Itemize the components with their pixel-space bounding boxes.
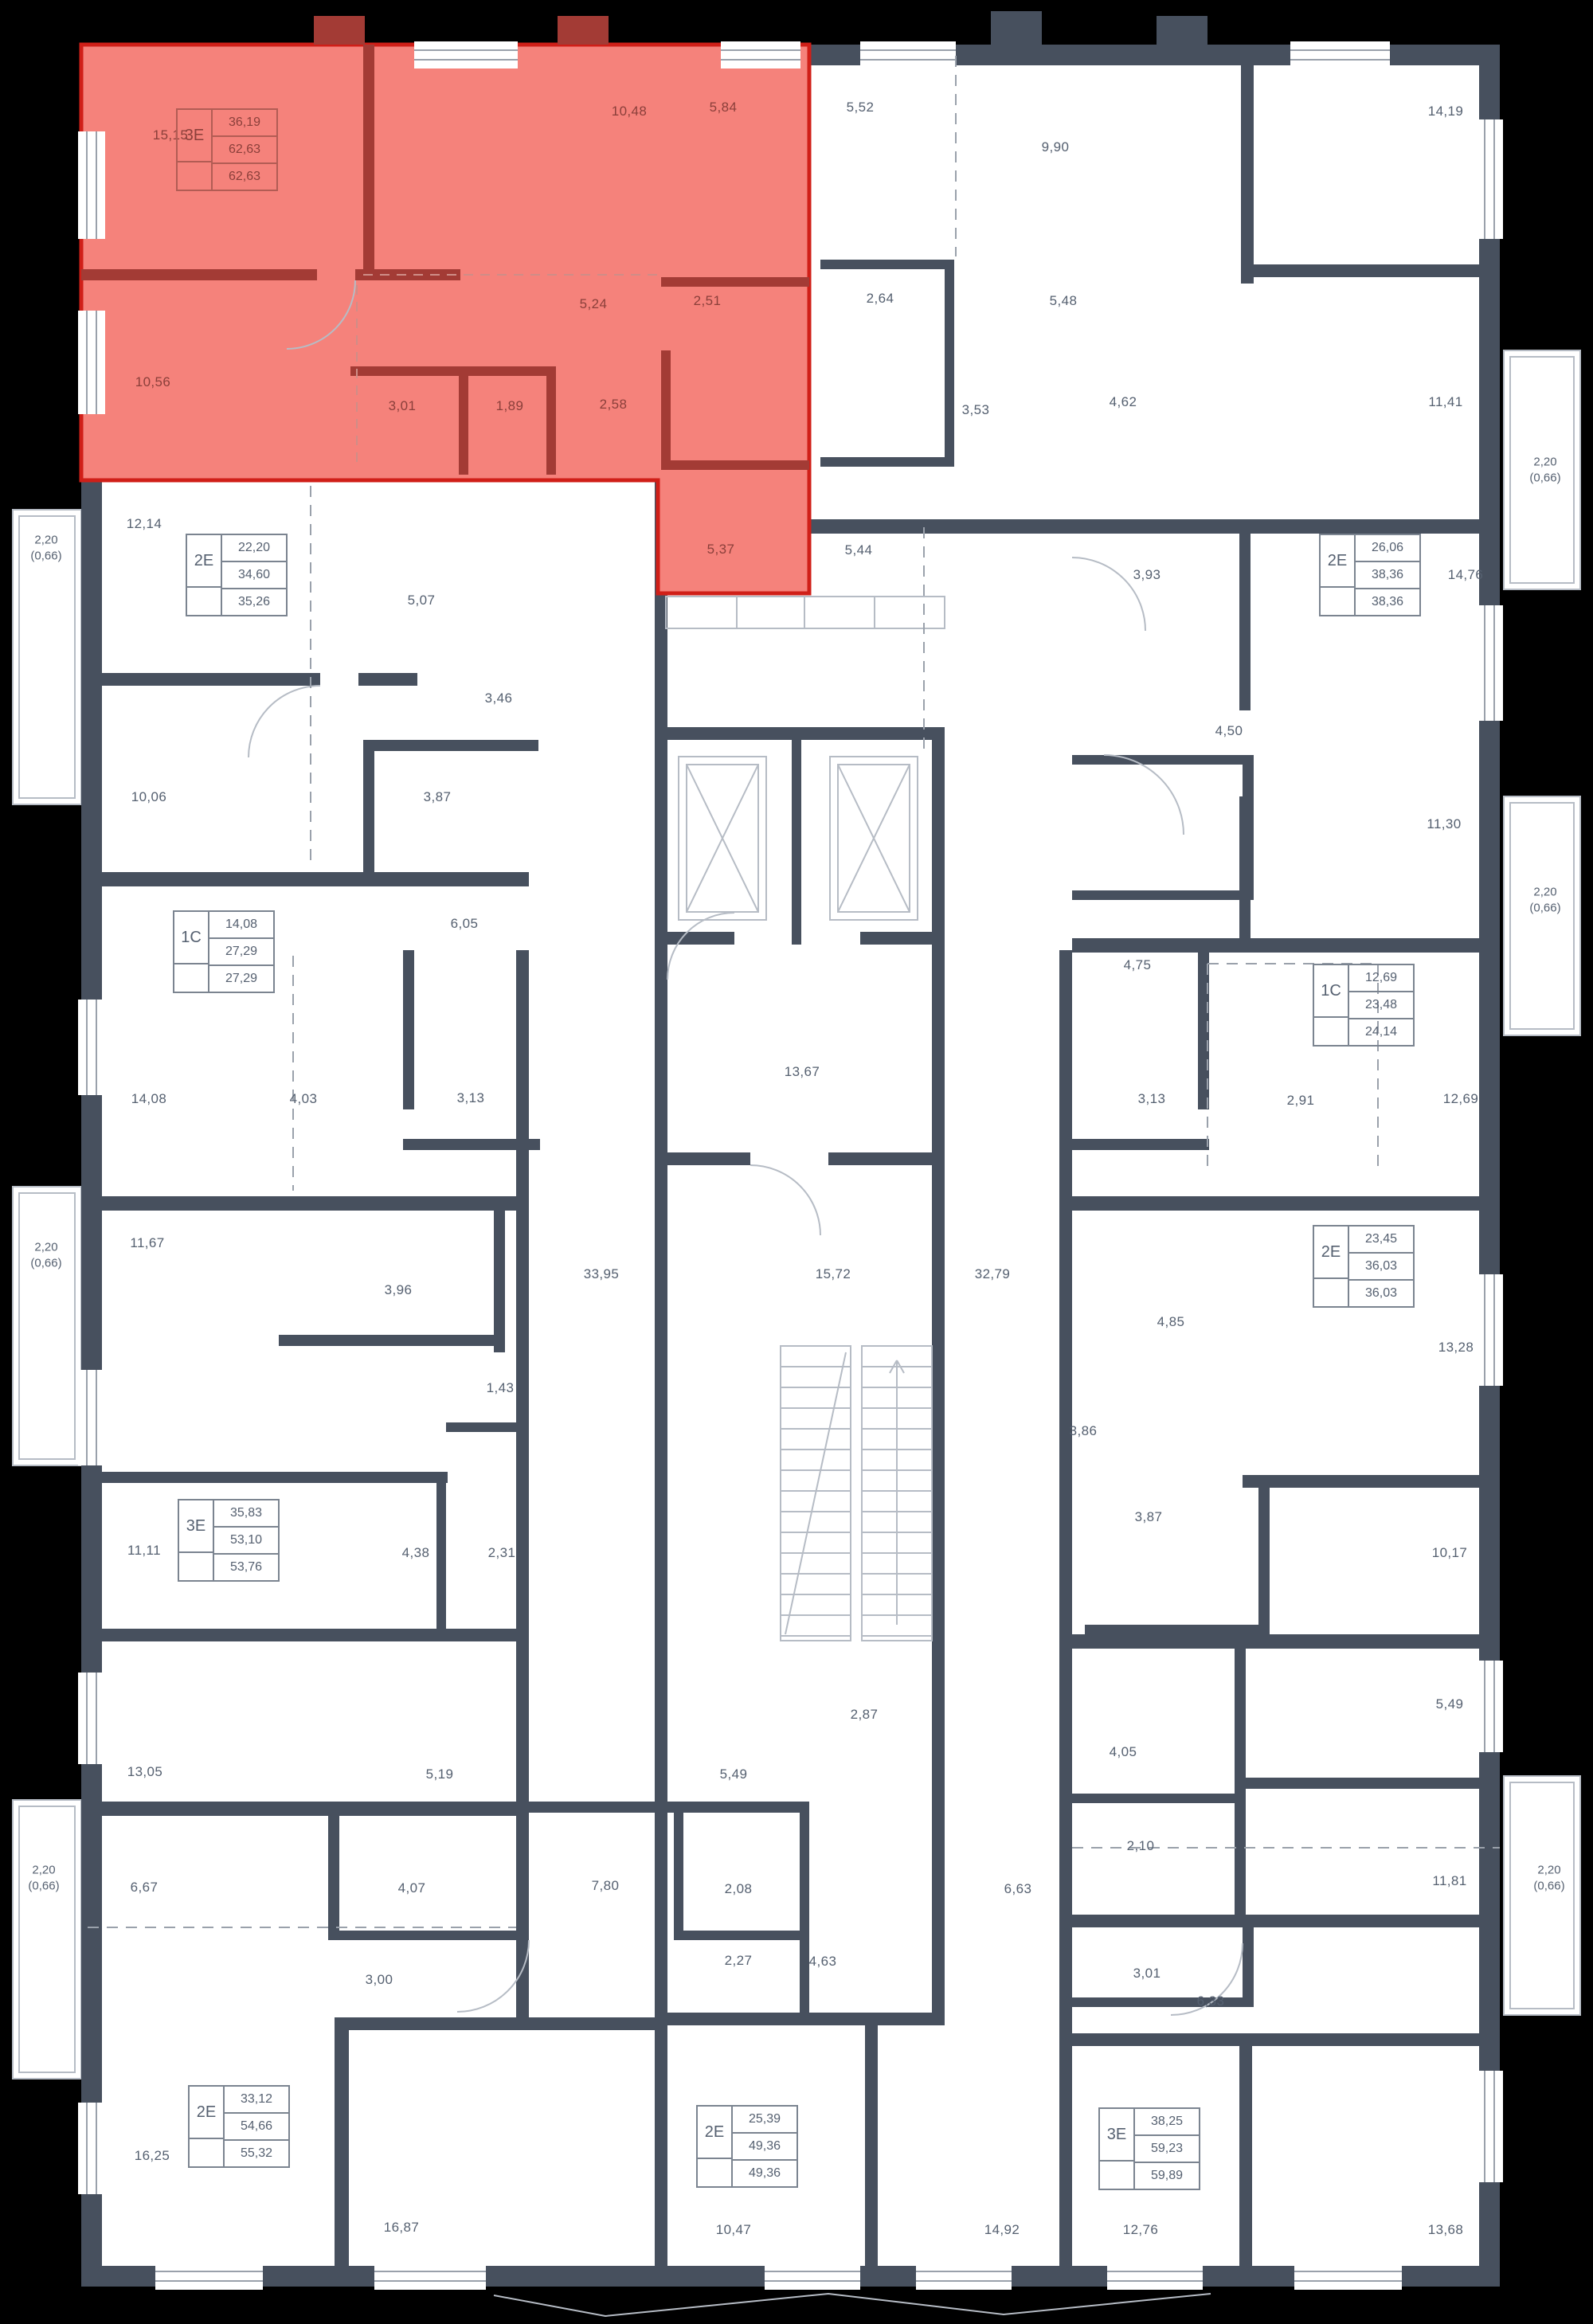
room-area-label: 12,14 — [127, 516, 162, 532]
room-area-label: 5,49 — [1436, 1696, 1464, 1712]
apartment-info-box: 2Е22,2034,6035,26 — [186, 534, 288, 616]
room-area-label: 14,08 — [131, 1091, 167, 1107]
room-area-label: 2,51 — [694, 293, 722, 309]
room-area-label: 5,19 — [426, 1766, 454, 1782]
room-area-label: 11,30 — [1427, 816, 1461, 832]
room-area-label: 11,81 — [1432, 1873, 1466, 1889]
room-area-label: 5,48 — [1050, 293, 1078, 309]
room-area-label: 6,67 — [131, 1880, 159, 1896]
apartment-info-box: 1С12,6923,4824,14 — [1313, 964, 1415, 1047]
apartment-area-value: 35,26 — [222, 589, 286, 615]
room-area-label: 2,91 — [1287, 1093, 1315, 1109]
room-area-label: 3,01 — [1133, 1966, 1161, 1982]
apartment-area-value: 38,25 — [1135, 2109, 1199, 2136]
room-area-label: 33,95 — [584, 1266, 620, 1282]
room-area-label: 3,46 — [485, 691, 513, 706]
room-area-label: 13,67 — [785, 1064, 820, 1080]
room-area-label: 5,49 — [720, 1766, 748, 1782]
room-area-label: 11,11 — [127, 1543, 161, 1559]
room-area-label: 14,92 — [984, 2222, 1020, 2238]
room-area-label: 3,96 — [385, 1282, 413, 1298]
room-area-label: 5,44 — [845, 542, 873, 558]
room-area-label: 5,52 — [847, 100, 875, 115]
apartment-type-label: 3Е — [178, 110, 211, 162]
room-area-label: 2,08 — [725, 1881, 753, 1897]
apartment-area-value: 59,23 — [1135, 2136, 1199, 2163]
room-area-label: 6,33 — [1197, 1993, 1225, 2009]
room-area-label: 15,72 — [816, 1266, 851, 1282]
room-area-label: 10,06 — [131, 789, 167, 805]
apartment-area-value: 26,06 — [1356, 535, 1419, 562]
room-area-label: 2,64 — [867, 291, 894, 307]
apartment-area-value: 23,45 — [1349, 1227, 1413, 1254]
balcony-area-label: 2,20(0,66) — [30, 533, 61, 564]
apartment-area-value: 22,20 — [222, 535, 286, 562]
apartment-type-label: 2Е — [187, 535, 221, 588]
apartment-type-label: 2Е — [1321, 535, 1354, 588]
room-area-label: 16,87 — [384, 2220, 420, 2236]
room-area-label: 7,80 — [592, 1878, 620, 1894]
room-area-label: 4,07 — [398, 1880, 426, 1896]
room-area-label: 3,00 — [366, 1972, 393, 1988]
room-area-label: 3,87 — [1135, 1509, 1163, 1525]
apartment-area-value: 25,39 — [733, 2107, 796, 2134]
apartment-type-label: 2Е — [190, 2087, 223, 2139]
room-area-label: 3,13 — [457, 1090, 485, 1106]
room-area-label: 2,10 — [1127, 1838, 1155, 1854]
apartment-area-value: 12,69 — [1349, 965, 1413, 992]
floor-plan: 15,1510,485,8410,565,242,513,011,892,585… — [0, 0, 1593, 2324]
apartment-area-value: 59,89 — [1135, 2163, 1199, 2189]
apartment-area-value: 62,63 — [213, 137, 276, 164]
apartment-type-label: 1С — [174, 912, 208, 964]
balcony-area-label: 2,20(0,66) — [1533, 1863, 1564, 1894]
room-area-label: 10,17 — [1432, 1545, 1468, 1561]
room-area-label: 4,85 — [1157, 1314, 1185, 1330]
room-area-label: 1,43 — [487, 1380, 515, 1396]
balcony-area-label: 2,20(0,66) — [1529, 455, 1560, 486]
apartment-area-value: 34,60 — [222, 562, 286, 589]
room-area-label: 16,25 — [135, 2148, 170, 2164]
apartment-area-value: 24,14 — [1349, 1019, 1413, 1045]
apartment-info-box: 3Е36,1962,6362,63 — [176, 108, 278, 191]
apartment-info-box: 2Е23,4536,0336,03 — [1313, 1225, 1415, 1308]
apartment-area-value: 53,10 — [214, 1528, 278, 1555]
room-area-label: 12,76 — [1123, 2222, 1159, 2238]
apartment-area-value: 27,29 — [209, 939, 273, 966]
room-area-label: 11,67 — [130, 1235, 164, 1251]
room-area-label: 4,50 — [1215, 723, 1243, 739]
apartment-type-label: 1С — [1314, 965, 1348, 1018]
apartment-info-box: 2Е26,0638,3638,36 — [1319, 534, 1421, 616]
apartment-area-value: 23,48 — [1349, 992, 1413, 1019]
room-area-label: 2,58 — [600, 397, 628, 413]
room-area-label: 3,01 — [389, 398, 417, 414]
apartment-info-box: 3Е35,8353,1053,76 — [178, 1499, 280, 1582]
apartment-area-value: 38,36 — [1356, 562, 1419, 589]
apartment-area-value: 36,03 — [1349, 1281, 1413, 1306]
apartment-type-label: 2Е — [698, 2107, 731, 2159]
room-area-label: 3,87 — [424, 789, 452, 805]
apartment-area-value: 27,29 — [209, 966, 273, 992]
room-area-label: 14,19 — [1428, 104, 1464, 119]
room-area-label: 32,79 — [975, 1266, 1011, 1282]
room-area-label: 6,05 — [451, 916, 479, 932]
room-area-label: 13,68 — [1428, 2222, 1464, 2238]
room-area-label: 2,31 — [488, 1545, 516, 1561]
apartment-area-value: 14,08 — [209, 912, 273, 939]
room-area-label: 4,62 — [1110, 394, 1137, 410]
room-area-label: 1,89 — [496, 398, 524, 414]
apartment-area-value: 36,03 — [1349, 1254, 1413, 1281]
apartment-area-value: 49,36 — [733, 2161, 796, 2186]
labels-layer: 15,1510,485,8410,565,242,513,011,892,585… — [0, 0, 1593, 2324]
apartment-area-value: 36,19 — [213, 110, 276, 137]
balcony-area-label: 2,20(0,66) — [1529, 885, 1560, 916]
apartment-area-value: 38,36 — [1356, 589, 1419, 615]
apartment-info-box: 1С14,0827,2927,29 — [173, 910, 275, 993]
room-area-label: 6,63 — [1004, 1881, 1032, 1897]
room-area-label: 4,05 — [1110, 1744, 1137, 1760]
room-area-label: 2,87 — [851, 1707, 879, 1723]
apartment-info-box: 2Е33,1254,6655,32 — [188, 2085, 290, 2168]
room-area-label: 5,37 — [707, 542, 735, 558]
room-area-label: 12,69 — [1443, 1091, 1479, 1107]
apartment-area-value: 55,32 — [225, 2141, 288, 2166]
balcony-area-label: 2,20(0,66) — [30, 1240, 61, 1271]
apartment-area-value: 35,83 — [214, 1500, 278, 1528]
apartment-area-value: 49,36 — [733, 2134, 796, 2161]
apartment-info-box: 2Е25,3949,3649,36 — [696, 2105, 798, 2188]
apartment-type-label: 2Е — [1314, 1227, 1348, 1279]
apartment-area-value: 53,76 — [214, 1555, 278, 1580]
room-area-label: 11,41 — [1428, 394, 1462, 410]
room-area-label: 3,53 — [962, 402, 990, 418]
room-area-label: 10,56 — [135, 374, 171, 390]
room-area-label: 5,84 — [710, 100, 738, 115]
balcony-area-label: 2,20(0,66) — [28, 1863, 59, 1894]
room-area-label: 13,05 — [127, 1764, 163, 1780]
room-area-label: 10,47 — [716, 2222, 752, 2238]
apartment-info-box: 3Е38,2559,2359,89 — [1098, 2107, 1200, 2190]
apartment-type-label: 3Е — [179, 1500, 213, 1553]
room-area-label: 9,90 — [1042, 139, 1070, 155]
apartment-area-value: 62,63 — [213, 164, 276, 190]
room-area-label: 4,38 — [402, 1545, 430, 1561]
room-area-label: 2,27 — [725, 1953, 753, 1969]
room-area-label: 3,93 — [1133, 567, 1161, 583]
room-area-label: 5,07 — [408, 593, 436, 608]
room-area-label: 5,24 — [580, 296, 608, 312]
room-area-label: 13,28 — [1438, 1340, 1474, 1356]
apartment-area-value: 33,12 — [225, 2087, 288, 2114]
room-area-label: 14,76 — [1448, 567, 1484, 583]
room-area-label: 3,13 — [1138, 1091, 1166, 1107]
room-area-label: 4,03 — [290, 1091, 318, 1107]
apartment-area-value: 54,66 — [225, 2114, 288, 2141]
room-area-label: 4,63 — [809, 1954, 837, 1970]
apartment-type-label: 3Е — [1100, 2109, 1133, 2162]
room-area-label: 3,86 — [1070, 1423, 1098, 1439]
room-area-label: 10,48 — [612, 104, 648, 119]
room-area-label: 4,75 — [1124, 957, 1152, 973]
